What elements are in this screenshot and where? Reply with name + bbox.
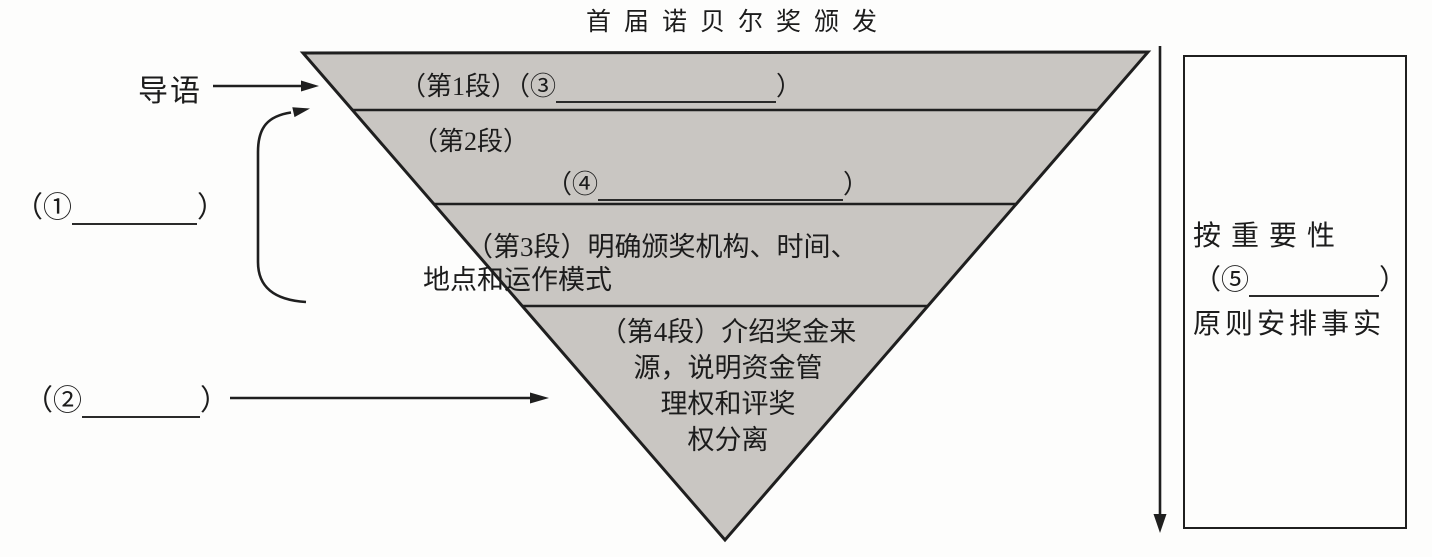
band1-label: （第1段）（③） bbox=[400, 66, 802, 103]
blank2-prefix: （② bbox=[24, 385, 82, 417]
band4-text-line4: 权分离 bbox=[600, 422, 857, 458]
importance-blank-suffix: ） bbox=[1379, 265, 1407, 296]
lead-pointer-arrow bbox=[213, 81, 319, 92]
band2-blank: （④） bbox=[546, 164, 869, 201]
band4-text: （第4段）介绍奖金来 源，说明资金管 理权和评奖 权分离 bbox=[600, 314, 857, 458]
blank1-prefix: （① bbox=[14, 192, 72, 224]
diagram-title: 首届诺贝尔奖颁发 bbox=[586, 2, 890, 38]
blank2-suffix: ） bbox=[200, 385, 229, 417]
blank1-bracket-arrow bbox=[258, 107, 310, 302]
importance-blank-prefix: （⑤ bbox=[1193, 265, 1249, 296]
importance-down-arrow bbox=[1154, 46, 1167, 533]
blank2-label: （②） bbox=[24, 377, 229, 419]
band3-text-line2: 地点和运作模式 bbox=[423, 258, 612, 297]
band2-blank-suffix: ） bbox=[843, 170, 869, 199]
diagram-canvas: 首届诺贝尔奖颁发 导语 （①） （②） （第1段）（③） （第2段） （④） （… bbox=[0, 0, 1432, 557]
blank2-pointer-arrow bbox=[230, 393, 549, 404]
blank4-underline bbox=[598, 199, 843, 202]
blank2-underline bbox=[82, 416, 200, 419]
blank1-suffix: ） bbox=[197, 192, 226, 224]
importance-blank: （⑤） bbox=[1193, 259, 1407, 303]
lead-label: 导语 bbox=[138, 66, 202, 110]
band4-text-line2: 源，说明资金管 bbox=[600, 350, 857, 386]
blank5-underline bbox=[1249, 295, 1379, 298]
importance-box: 按重要性 （⑤） 原则安排事实 bbox=[1183, 55, 1407, 529]
band1-prefix: （第1段）（③ bbox=[400, 72, 556, 101]
blank1-label: （①） bbox=[14, 184, 226, 226]
band4-text-line1: （第4段）介绍奖金来 bbox=[600, 314, 857, 350]
band2-blank-prefix: （④ bbox=[546, 170, 598, 199]
band4-text-line3: 理权和评奖 bbox=[600, 386, 857, 422]
blank1-underline bbox=[72, 223, 197, 226]
band2-label: （第2段） bbox=[412, 121, 529, 158]
importance-line2: 原则安排事实 bbox=[1193, 303, 1407, 347]
importance-text: 按重要性 （⑤） 原则安排事实 bbox=[1193, 215, 1407, 347]
importance-line1: 按重要性 bbox=[1193, 215, 1407, 259]
blank3-underline bbox=[556, 101, 776, 104]
band1-suffix: ） bbox=[776, 72, 802, 101]
